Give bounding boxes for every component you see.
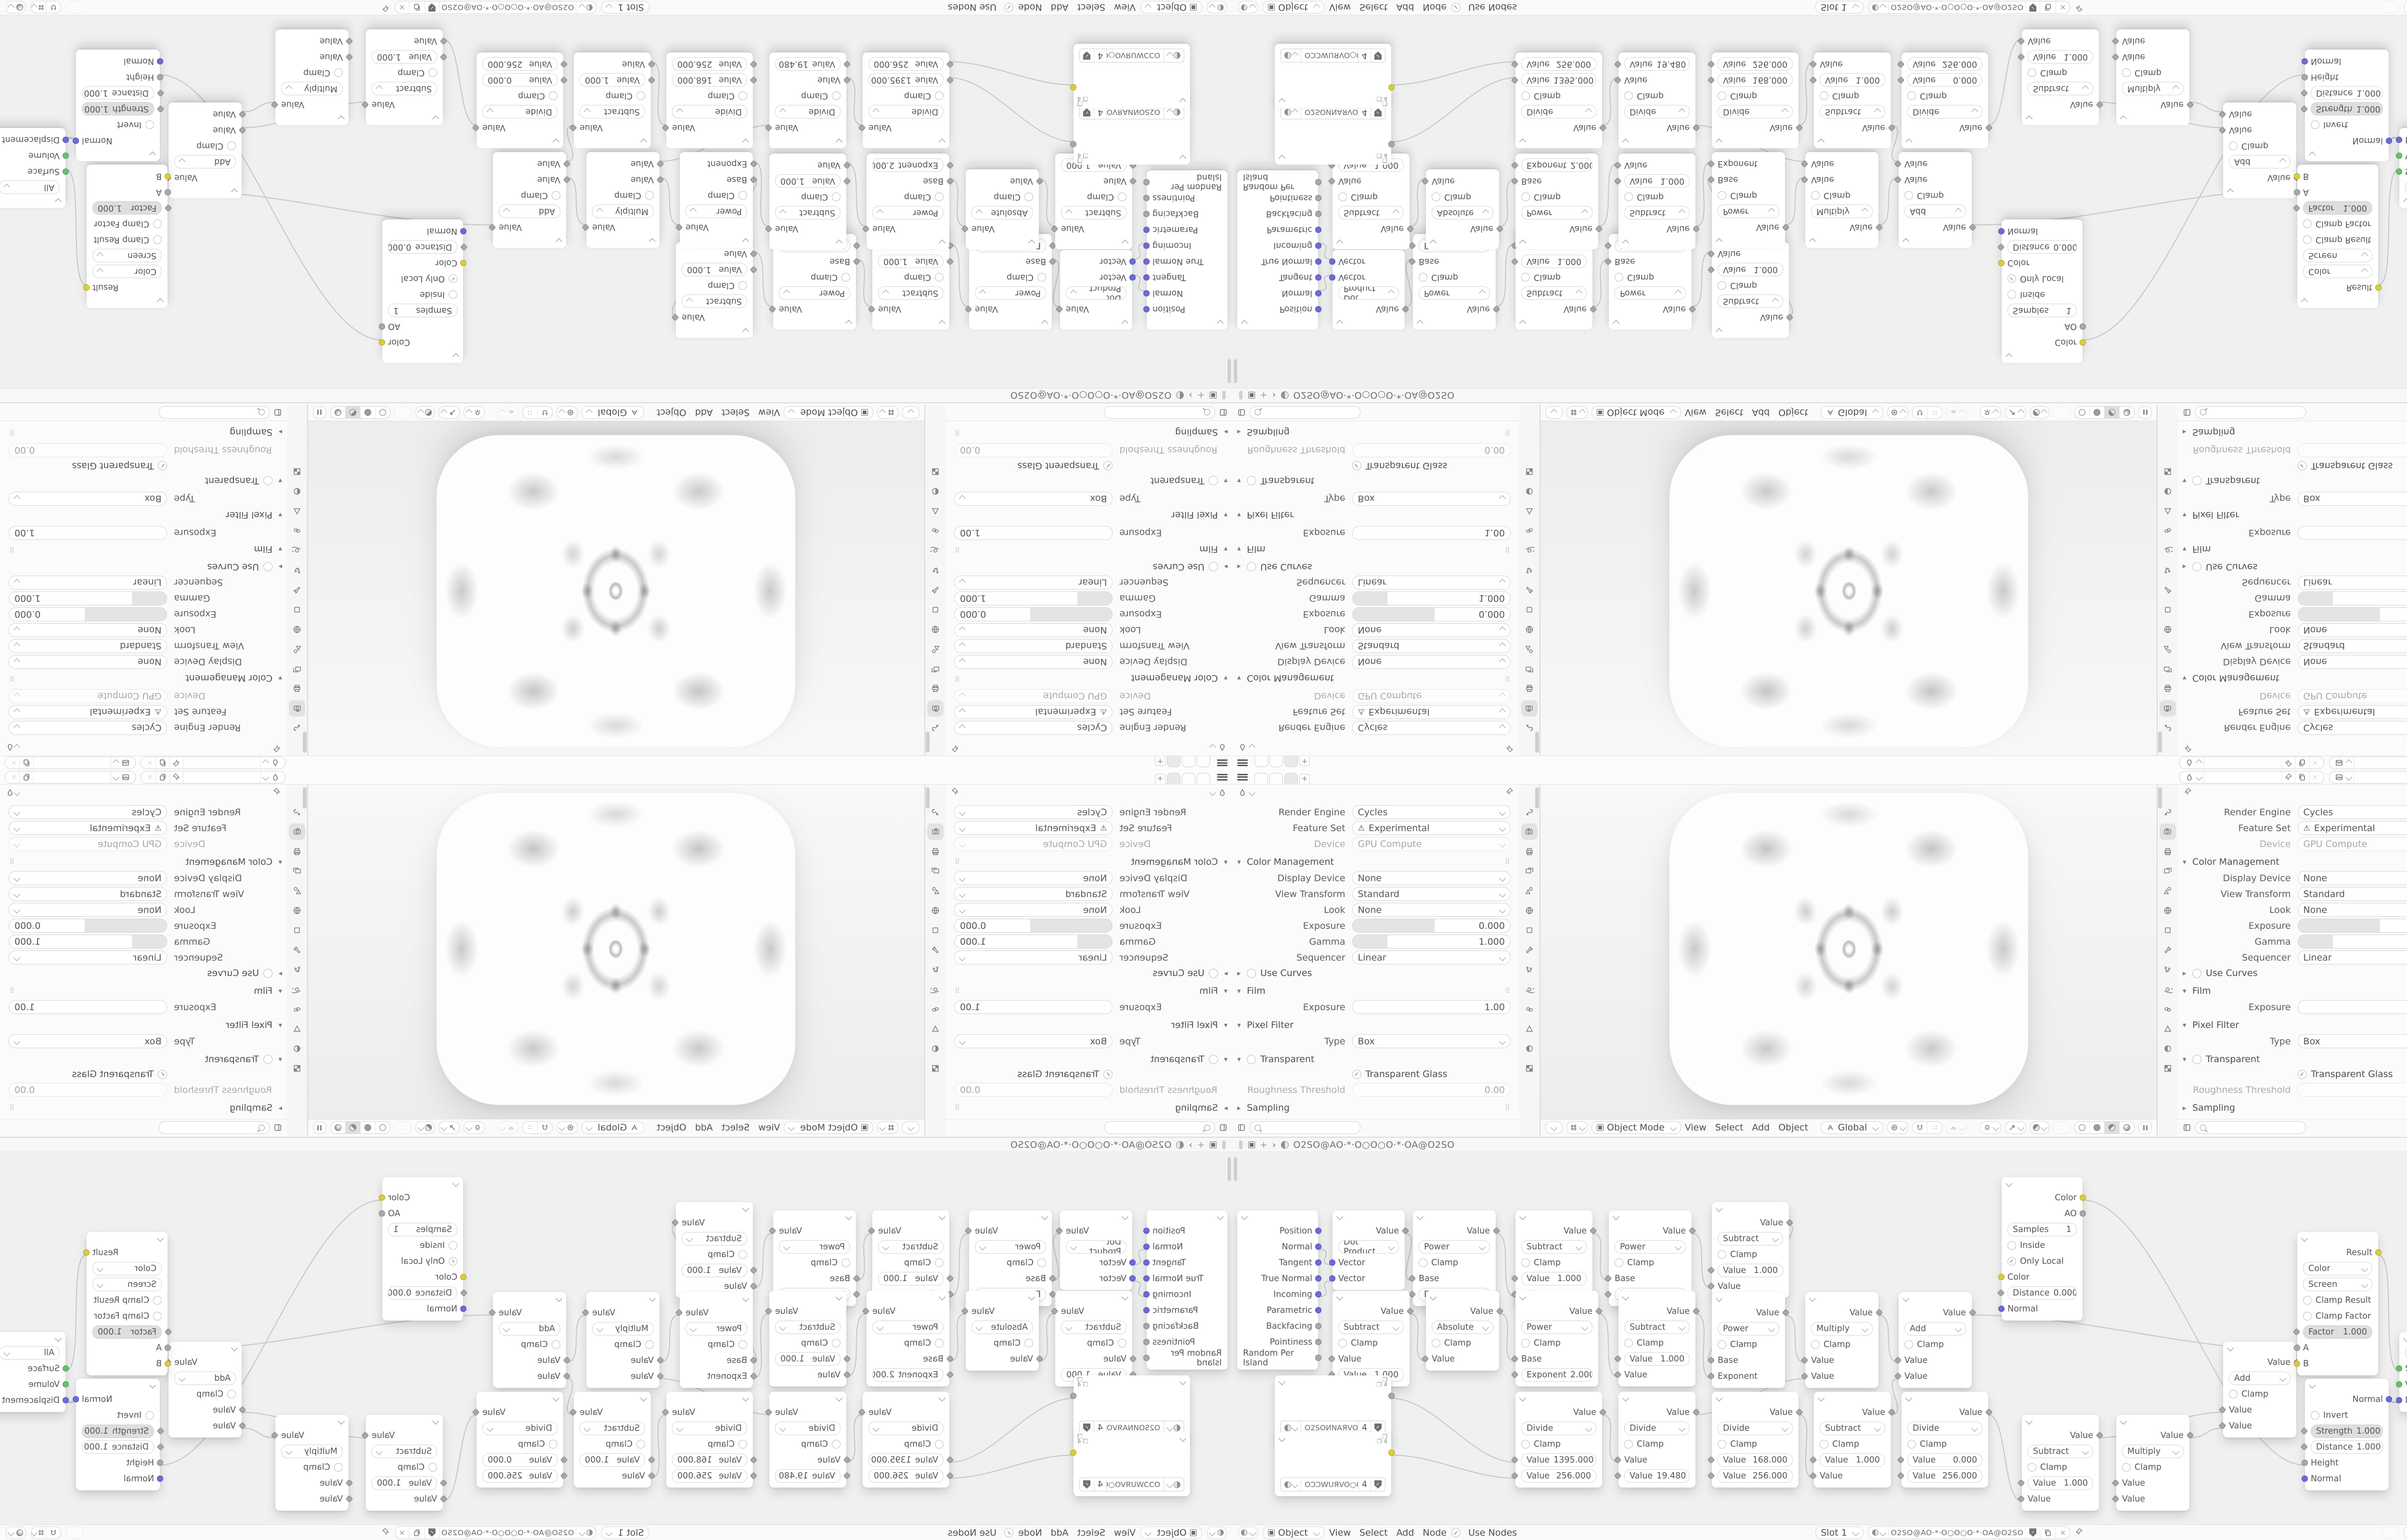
menu-add[interactable]: Add (695, 1122, 713, 1133)
dropdown-sequencer[interactable]: Linear (9, 950, 167, 964)
dropdown-look[interactable]: None (2298, 623, 2407, 637)
workspace-tab[interactable] (1197, 756, 1210, 767)
collapse-icon[interactable] (453, 353, 459, 360)
node-operation-dropdown[interactable]: Add (1904, 1322, 1966, 1335)
magnet-icon[interactable] (46, 2, 61, 13)
panel-header-film[interactable]: ▾Film⠿ (954, 983, 1228, 999)
node-checkbox[interactable] (1718, 192, 1726, 200)
properties-tab-scene-icon[interactable] (1521, 641, 1538, 657)
shader-node-img1[interactable]: ❐❐ 4O2SOИNАЯVO○O○OVЯАNИO2SO4✓ (1074, 101, 1190, 165)
node-checkbox[interactable] (2311, 1411, 2319, 1420)
node-operation-dropdown[interactable]: Multiply (281, 82, 343, 96)
properties-tab-modifier-icon[interactable] (2160, 582, 2176, 598)
editor-type-icon[interactable] (1237, 408, 1246, 417)
menu-icon[interactable] (1237, 760, 1248, 767)
properties-tab-modifier-icon[interactable] (1521, 582, 1538, 598)
pivot-dropdown[interactable] (556, 406, 578, 419)
node-operation-dropdown[interactable]: Power (1718, 1322, 1779, 1335)
collapse-icon[interactable] (1241, 1213, 1248, 1220)
node-socket[interactable] (1143, 259, 1150, 265)
panel-header-pixel-filter[interactable]: ▾Pixel Filter (9, 1017, 282, 1033)
value-field-gamma[interactable]: 1.000 (954, 591, 1113, 605)
properties-tab-material-icon[interactable] (2160, 1040, 2176, 1057)
subpanel-use-curves[interactable]: ▸Use Curves (2183, 966, 2407, 980)
node-operation-dropdown[interactable]: Subtract (682, 1232, 747, 1245)
fake-user-shield-icon[interactable]: ✓ (1080, 49, 1094, 62)
collapse-icon[interactable] (2309, 152, 2316, 158)
properties-tab-texture-icon[interactable] (2160, 463, 2176, 480)
value-field-roughness-threshold[interactable]: 0.00 (954, 1083, 1113, 1097)
node-checkbox[interactable] (1811, 1340, 1820, 1349)
node-operation-dropdown[interactable]: Subtract (372, 1445, 437, 1458)
dropdown-look[interactable]: None (9, 903, 167, 917)
node-value-field[interactable]: Distance1.000 (2311, 87, 2383, 100)
node-value-field[interactable]: Exponent2.000 (872, 1368, 944, 1382)
node-value-field[interactable]: Value1.000 (878, 255, 944, 269)
shader-node-mul1[interactable]: ValueMultiplyClampValueValue (586, 152, 660, 248)
shader-node-ao[interactable]: ColorAOSamples1Inside✓Only LocalColorDis… (2002, 219, 2083, 363)
node-socket[interactable] (1998, 1274, 2005, 1280)
dropdown-device[interactable]: GPU Compute (9, 689, 167, 703)
shading-mode-solid-button[interactable] (2090, 1122, 2105, 1133)
panel-checkbox[interactable] (263, 1055, 272, 1064)
material-name-field[interactable]: O2SO@AO·*·O○O○O·*·OA@O2SO (439, 1527, 576, 1539)
panel-header-film[interactable]: ▾Film⠿ (2183, 541, 2407, 557)
fake-user-shield-icon[interactable]: ✓ (2026, 1, 2040, 13)
properties-tab-constraint-icon[interactable] (1521, 1001, 1538, 1017)
pin-icon[interactable] (273, 742, 281, 753)
properties-tab-particles-icon[interactable] (1521, 962, 1538, 978)
editor-type-icon[interactable] (1219, 1123, 1228, 1132)
properties-tab-scene-icon[interactable] (2160, 883, 2176, 899)
node-operation-dropdown[interactable]: Add (2229, 155, 2291, 169)
viewport-canvas[interactable] (1540, 784, 2157, 1119)
shader-node-canvas[interactable]: PositionNormalTangentTrue NormalIncoming… (0, 1152, 1232, 1525)
value-field-exposure[interactable]: 0.000 (2298, 919, 2407, 933)
dropdown-display-device[interactable]: None (1352, 655, 1511, 669)
collapse-icon[interactable] (2301, 1235, 2308, 1242)
shader-node-abs[interactable]: ValueAbsoluteClampValue (966, 169, 1039, 249)
workspace-tab-active[interactable] (1284, 773, 1298, 784)
node-socket[interactable] (63, 1397, 69, 1403)
dropdown-feature-set[interactable]: ⚠Experimental (954, 821, 1113, 835)
node-socket[interactable] (1143, 1275, 1150, 1282)
node-checkbox[interactable] (2303, 1312, 2312, 1321)
node-operation-dropdown[interactable]: Absolute (971, 206, 1033, 220)
shader-node-add3[interactable]: ValueAddClampValueValue (168, 1342, 242, 1437)
value-field-exposure[interactable]: 0.000 (2298, 607, 2407, 621)
node-operation-dropdown[interactable]: Subtract (2028, 1445, 2093, 1458)
datablock-selector[interactable]: OƆƆWUЯVO○O○OVЯUWƆƆO4✓ (1079, 49, 1184, 63)
node-checkbox[interactable] (1820, 92, 1828, 101)
menu-object[interactable]: Object (1778, 1122, 1808, 1133)
shader-node-abs[interactable]: ValueAbsoluteClampValue (1426, 1291, 1499, 1371)
node-operation-dropdown[interactable]: Power (872, 1321, 944, 1334)
value-field-roughness-threshold[interactable]: 0.00 (9, 443, 167, 457)
fake-user-shield-icon[interactable]: ✓ (425, 1527, 439, 1539)
collapse-icon[interactable] (157, 298, 164, 305)
copy-icon[interactable] (155, 771, 169, 783)
shader-node-pow2b[interactable]: ValuePowerClampBaseExponent2.000 (1515, 154, 1598, 249)
node-checkbox[interactable] (2229, 142, 2238, 151)
properties-tab-viewlayer-icon[interactable] (289, 863, 305, 879)
shading-mode-wire-button[interactable] (2075, 1122, 2090, 1133)
value-field-roughness-threshold[interactable]: 0.00 (954, 443, 1113, 457)
node-checkbox[interactable] (832, 1339, 841, 1347)
overlay-dropdown[interactable] (6, 1, 26, 14)
collapse-icon[interactable] (1622, 139, 1629, 145)
pivot-dropdown[interactable] (1887, 406, 1908, 419)
node-operation-dropdown[interactable]: Dot Product (1338, 287, 1399, 300)
workspace-tab-active[interactable] (1167, 756, 1180, 767)
properties-tab-material-icon[interactable] (927, 483, 944, 500)
node-operation-dropdown[interactable]: Divide (672, 105, 747, 119)
value-field-exposure[interactable]: 1.00 (954, 1000, 1113, 1014)
shader-node-div3[interactable]: ValueDivideClampValue168.000Value256.000 (1712, 1392, 1799, 1488)
properties-tab-particles-icon[interactable] (927, 562, 944, 578)
panel-header-performance[interactable]: ▸Performance≡⠿ (954, 421, 1228, 422)
visibility-dropdown[interactable] (1980, 406, 2001, 419)
shading-mode-rend-button[interactable] (2120, 1122, 2134, 1133)
properties-tab-particles-icon[interactable] (2160, 962, 2176, 978)
panel-header-performance[interactable]: ▸Performance≡⠿ (9, 421, 282, 422)
menu-view[interactable]: View (758, 1122, 780, 1133)
node-operation-dropdown[interactable]: Power (975, 287, 1046, 300)
shader-node-geo[interactable]: PositionNormalTangentTrue NormalIncoming… (1237, 1210, 1318, 1370)
properties-tab-render-icon[interactable] (289, 700, 305, 717)
dropdown-render-engine[interactable]: Cycles (1352, 721, 1511, 735)
panel-header-transparent[interactable]: ▾Transparent (1237, 473, 1511, 488)
panel-grip-icon[interactable]: ⠿ (954, 858, 960, 866)
node-checkbox[interactable] (1820, 1440, 1828, 1449)
workspace-tab[interactable] (1182, 756, 1195, 767)
node-value-field[interactable]: Exponent2.000 (872, 159, 944, 172)
node-checkbox[interactable] (935, 1440, 944, 1449)
node-operation-dropdown[interactable]: Multiply (1811, 1322, 1873, 1335)
collapse-icon[interactable] (742, 238, 749, 245)
pin-icon[interactable] (169, 771, 183, 783)
node-checkbox[interactable] (1624, 1440, 1633, 1449)
collapse-icon[interactable] (1902, 1295, 1909, 1302)
properties-tab-physics-icon[interactable] (927, 981, 944, 998)
panel-header-color-management[interactable]: ▾Color Management⠿ (9, 670, 282, 686)
dropdown-type[interactable]: Box (9, 1034, 167, 1048)
properties-tab-texture-icon[interactable] (289, 1060, 305, 1077)
pin-icon[interactable] (2282, 757, 2295, 769)
scrollbar[interactable] (303, 787, 307, 808)
node-operation-dropdown[interactable]: Subtract (1521, 1240, 1587, 1254)
node-operation-dropdown[interactable]: Power (872, 206, 944, 220)
collapse-icon[interactable] (1336, 320, 1343, 327)
menu-icon[interactable] (1237, 774, 1248, 781)
node-checkbox[interactable] (145, 121, 154, 129)
node-operation-dropdown[interactable]: Subtract (1624, 206, 1690, 220)
dropdown-view-transform[interactable]: Standard (1352, 639, 1511, 653)
collapse-icon[interactable] (939, 320, 945, 327)
panel-grip-icon[interactable]: ⠿ (9, 858, 14, 866)
collapse-icon[interactable] (231, 189, 238, 195)
node-checkbox[interactable] (1521, 193, 1530, 202)
collapse-icon[interactable] (1905, 1395, 1912, 1401)
add-workspace-button[interactable]: + (1299, 756, 1310, 766)
magnet-icon[interactable] (537, 1122, 552, 1133)
collapse-icon[interactable] (1818, 139, 1825, 145)
shading-mode-solid-button[interactable] (360, 1122, 375, 1133)
fake-user-shield-icon[interactable]: ✓ (1080, 1478, 1094, 1491)
pause-button[interactable] (2138, 406, 2152, 419)
value-field-gamma[interactable]: 1.000 (2298, 591, 2407, 605)
node-socket[interactable] (1070, 85, 1076, 91)
dropdown-display-device[interactable]: None (1352, 871, 1511, 885)
menu-select[interactable]: Select (722, 407, 750, 418)
node-operation-dropdown[interactable]: Subtract (878, 287, 944, 300)
node-value-field[interactable]: Value1.000 (1718, 1264, 1783, 1277)
value-field-roughness-threshold[interactable]: 0.00 (1352, 443, 1511, 457)
node-operation-dropdown[interactable]: Power (1419, 287, 1490, 300)
properties-tab-texture-icon[interactable] (927, 463, 944, 480)
node-checkbox[interactable] (1338, 193, 1347, 202)
menu-add[interactable]: Add (1051, 2, 1069, 13)
slot-dropdown[interactable]: Slot 1 (601, 1527, 649, 1539)
node-checkbox[interactable] (1718, 1440, 1726, 1449)
node-checkbox[interactable] (1521, 1440, 1530, 1449)
dropdown-type[interactable]: Box (1352, 1034, 1511, 1048)
menu-select[interactable]: Select (1077, 1527, 1105, 1538)
properties-tab-scene-icon[interactable] (289, 883, 305, 899)
dropdown-sequencer[interactable]: Linear (1352, 950, 1511, 964)
node-value-field[interactable]: Samples1 (388, 1223, 457, 1236)
properties-tab-object-icon[interactable] (2160, 602, 2176, 618)
collapse-icon[interactable] (1613, 320, 1619, 327)
node-socket[interactable] (1998, 229, 2005, 235)
node-value-field[interactable]: Value1.000 (1521, 255, 1587, 269)
node-value-field[interactable]: Value1.000 (1521, 1272, 1587, 1285)
node-operation-dropdown[interactable]: Screen (2303, 1278, 2372, 1291)
panel-grip-icon[interactable]: ⠿ (1505, 545, 1511, 553)
properties-tab-object-icon[interactable] (1521, 602, 1538, 618)
properties-tab-output-icon[interactable] (927, 843, 944, 860)
shading-mode-solid-button[interactable] (2090, 407, 2105, 418)
node-checkbox[interactable]: ✓ (2007, 1257, 2016, 1266)
node-operation-dropdown[interactable]: Add (174, 155, 236, 169)
node-value-field[interactable]: Value168.000 (672, 1453, 747, 1467)
snap-group[interactable] (2404, 1527, 2407, 1539)
panel-header-sampling[interactable]: ▸Sampling⠿ (1237, 424, 1511, 440)
properties-tab-object-icon[interactable] (289, 922, 305, 938)
collapse-icon[interactable] (939, 1395, 945, 1401)
dropdown-display-device[interactable]: None (954, 655, 1113, 669)
pin-icon[interactable] (1505, 742, 1514, 753)
shader-node-sub4[interactable]: ValueSubtractClampValue1.000Value (769, 154, 846, 249)
shader-node-ao[interactable]: ColorAOSamples1Inside✓Only LocalColorDis… (382, 1177, 463, 1321)
menu-node[interactable]: Node (1423, 2, 1447, 13)
search-input[interactable] (1250, 1121, 1360, 1134)
node-operation-dropdown[interactable]: All (2405, 1346, 2407, 1360)
proportional-editing-dropdown[interactable] (497, 406, 518, 419)
node-socket[interactable] (1998, 260, 2005, 267)
material-datablock-selector[interactable]: O2SO@AO·*·O○O○O·*·OA@O2SO ✓ × (1868, 1, 2070, 14)
value-field-roughness-threshold[interactable]: 0.00 (9, 1083, 167, 1097)
node-operation-dropdown[interactable]: Subtract (1718, 1232, 1783, 1245)
node-checkbox[interactable] (738, 1250, 747, 1259)
node-value-field[interactable]: Value1.000 (682, 263, 747, 277)
node-operation-dropdown[interactable]: Dot Product (1066, 287, 1126, 300)
node-operation-dropdown[interactable]: Divide (1521, 1422, 1596, 1435)
shader-node-add1[interactable]: ValueAddClampValueValue (1899, 152, 1972, 248)
pin-icon[interactable] (2184, 742, 2192, 753)
properties-tab-constraint-icon[interactable] (289, 523, 305, 539)
node-value-field[interactable]: Value1.000 (1624, 1352, 1690, 1366)
properties-tab-world-icon[interactable] (1521, 902, 1538, 919)
node-socket[interactable] (1143, 1228, 1150, 1234)
node-socket[interactable] (1315, 1323, 1321, 1329)
node-socket[interactable] (1315, 1339, 1321, 1345)
panel-header-transparent[interactable]: ▾Transparent (954, 473, 1228, 488)
snap-toggle[interactable] (2381, 1527, 2399, 1539)
shader-node-sub6[interactable]: ValueSubtractClampValue1.000Value (366, 29, 443, 125)
node-checkbox[interactable] (153, 1312, 162, 1321)
pin-icon[interactable] (382, 2, 390, 13)
panel-header-sampling[interactable]: ▸Sampling⠿ (954, 1100, 1228, 1116)
dropdown-render-engine[interactable]: Cycles (954, 805, 1113, 819)
node-operation-dropdown[interactable]: Subtract (775, 206, 841, 220)
fake-user-shield-icon[interactable]: ✓ (425, 1, 439, 13)
shader-node-sub2[interactable]: ValueSubtractClampValue1.000Value (1712, 242, 1789, 338)
node-checkbox[interactable]: ✓ (449, 1257, 457, 1266)
datablock-selector[interactable]: OƆƆWUЯVO○O○OVЯUWƆƆO4✓ (1079, 1477, 1184, 1491)
properties-tab-constraint-icon[interactable] (1521, 523, 1538, 539)
shader-node-dot[interactable]: ValueDot ProductVectorVector (1333, 250, 1405, 330)
shader-node-out[interactable]: AllSurfaceVolumeDisplacement (2399, 128, 2407, 208)
collapse-icon[interactable] (1279, 98, 1285, 105)
search-input[interactable] (2195, 406, 2306, 419)
menu-view[interactable]: View (1114, 2, 1136, 13)
properties-tab-output-icon[interactable] (289, 680, 305, 697)
shader-node-geo[interactable]: PositionNormalTangentTrue NormalIncoming… (1147, 1210, 1228, 1370)
properties-tab-constraint-icon[interactable] (2160, 1001, 2176, 1017)
shader-node-sub4[interactable]: ValueSubtractClampValue1.000Value (1618, 1291, 1695, 1386)
properties-tab-viewlayer-icon[interactable] (927, 863, 944, 879)
shader-node-div2[interactable]: ValueDivideClampValueValue19.480 (1618, 52, 1695, 148)
collapse-icon[interactable] (1622, 1294, 1629, 1300)
panel-header-pixel-filter[interactable]: ▾Pixel Filter (954, 1017, 1228, 1033)
gizmo-dropdown[interactable] (2005, 406, 2026, 419)
node-checkbox[interactable] (145, 1411, 154, 1420)
shader-node-powss[interactable]: ValuePowerClampBaseExponent (680, 152, 753, 248)
node-socket[interactable] (2375, 1249, 2381, 1256)
collapse-icon[interactable] (1905, 139, 1912, 145)
properties-tab-object-icon[interactable] (2160, 922, 2176, 938)
shader-node-sub4[interactable]: ValueSubtractClampValue1.000Value (1618, 154, 1695, 249)
collapse-icon[interactable] (1809, 1295, 1816, 1302)
shader-node-pow2b[interactable]: ValuePowerClampBaseExponent2.000 (867, 1291, 949, 1386)
panel-header-color-management[interactable]: ▾Color Management⠿ (9, 854, 282, 870)
properties-tab-material-icon[interactable] (1521, 1040, 1538, 1057)
magnet-icon[interactable] (1913, 407, 1928, 418)
pin-icon[interactable] (2184, 787, 2192, 798)
value-field-exposure[interactable]: 1.00 (954, 526, 1113, 540)
properties-tab-data-icon[interactable] (1521, 503, 1538, 519)
node-checkbox[interactable] (738, 192, 747, 200)
dropdown-device[interactable]: GPU Compute (954, 689, 1113, 703)
node-socket[interactable] (1143, 211, 1150, 218)
properties-tab-object-icon[interactable] (927, 922, 944, 938)
properties-tab-output-icon[interactable] (1521, 680, 1538, 697)
dropdown-display-device[interactable]: None (954, 871, 1113, 885)
node-socket[interactable] (379, 1194, 385, 1201)
node-socket[interactable] (2302, 59, 2308, 65)
xray-toggle[interactable] (394, 1121, 412, 1134)
search-input[interactable] (2195, 1121, 2306, 1134)
node-socket[interactable] (1329, 275, 1335, 281)
node-checkbox[interactable] (2028, 1463, 2036, 1472)
node-checkbox[interactable] (153, 1296, 162, 1305)
value-field-exposure[interactable]: 1.00 (2298, 526, 2407, 540)
collapse-icon[interactable] (1519, 1294, 1526, 1300)
node-operation-dropdown[interactable]: Divide (1521, 105, 1596, 119)
panel-grip-icon[interactable]: ⠿ (954, 545, 960, 553)
panel-grip-icon[interactable]: ⠿ (1505, 858, 1511, 866)
viewport-canvas[interactable] (308, 421, 924, 756)
shading-mode-rend-button[interactable] (331, 407, 345, 418)
shader-node-ao[interactable]: ColorAOSamples1Inside✓Only LocalColorDis… (2002, 1177, 2083, 1321)
node-operation-dropdown[interactable]: Multiply (1811, 205, 1873, 218)
panel-grip-icon[interactable]: ⠿ (954, 428, 960, 436)
node-socket[interactable] (2396, 1381, 2402, 1387)
properties-tab-render-icon[interactable] (927, 823, 944, 840)
dropdown-type[interactable]: Box (2298, 1034, 2407, 1048)
xray-toggle[interactable] (2053, 406, 2071, 419)
properties-tab-world-icon[interactable] (2160, 902, 2176, 919)
shading-mode-mat-button[interactable] (2105, 407, 2120, 418)
collapse-icon[interactable] (1279, 155, 1285, 162)
node-socket[interactable] (2396, 1397, 2402, 1403)
panel-header-color-management[interactable]: ▾Color Management⠿ (2183, 854, 2407, 870)
node-checkbox[interactable] (2229, 1390, 2238, 1399)
properties-tab-data-icon[interactable] (927, 1021, 944, 1037)
copy-icon[interactable] (155, 757, 169, 769)
panel-header-transparent[interactable]: ▾Transparent (2183, 473, 2407, 488)
subpanel-use-curves[interactable]: ▸Use Curves (2183, 560, 2407, 574)
shader-node-geo[interactable]: PositionNormalTangentTrue NormalIncoming… (1147, 170, 1228, 330)
properties-tab-world-icon[interactable] (927, 621, 944, 638)
properties-tab-texture-icon[interactable] (289, 463, 305, 480)
node-value-field[interactable]: Strength1.000 (82, 103, 154, 116)
node-checkbox[interactable] (738, 1340, 747, 1349)
collapse-icon[interactable] (742, 328, 749, 335)
dropdown-feature-set[interactable]: ⚠Experimental (9, 821, 167, 835)
viewlayer-name-field[interactable] (33, 771, 111, 783)
collapse-icon[interactable] (1519, 1395, 1526, 1401)
workspace-tab[interactable] (1269, 773, 1283, 784)
panel-header-film[interactable]: ▾Film⠿ (954, 541, 1228, 557)
node-value-field[interactable]: Value256.000 (1718, 58, 1793, 71)
fake-user-shield-icon[interactable]: ✓ (1371, 106, 1385, 119)
close-icon[interactable]: × (8, 757, 19, 769)
collapse-icon[interactable] (1417, 320, 1423, 327)
node-value-field[interactable]: Value1.000 (2028, 1476, 2093, 1490)
node-value-field[interactable]: Value1.000 (580, 1453, 645, 1467)
properties-tab-particles-icon[interactable] (2160, 562, 2176, 578)
menu-view[interactable]: View (758, 407, 780, 418)
panel-header-film[interactable]: ▾Film⠿ (9, 983, 282, 999)
copy-icon[interactable] (2040, 1527, 2056, 1539)
collapse-icon[interactable] (1716, 1205, 1722, 1212)
properties-tab-data-icon[interactable] (289, 503, 305, 519)
collapse-button[interactable] (1545, 406, 1563, 419)
shader-node-sub5[interactable]: ValueSubtractClampValue1.000Value (574, 1392, 651, 1488)
node-socket[interactable] (1143, 1244, 1150, 1250)
